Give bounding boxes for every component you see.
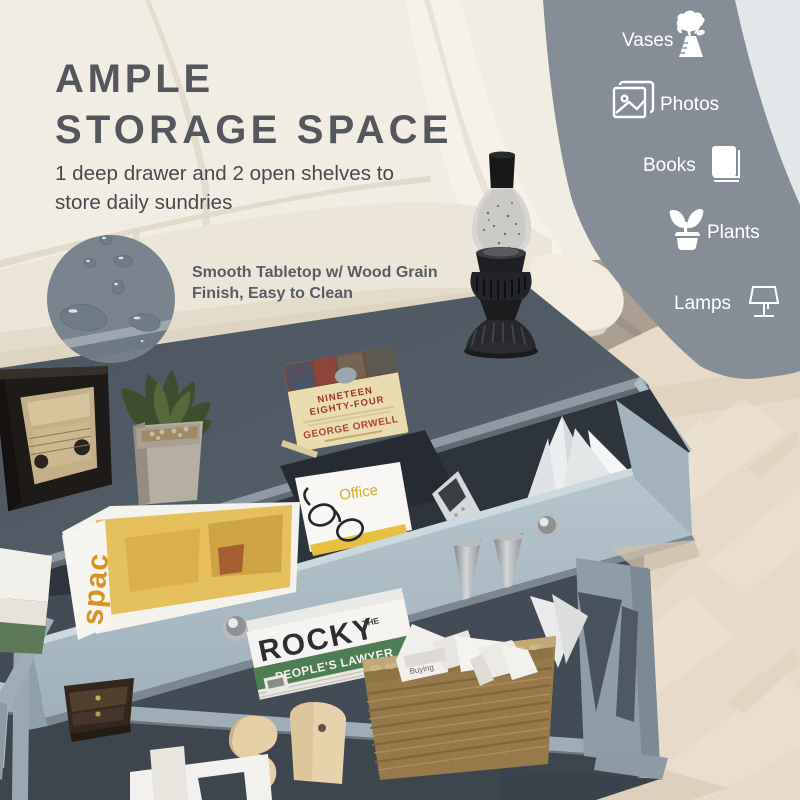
svg-text:Photos: Photos bbox=[660, 94, 719, 115]
svg-text:1 deep drawer and 2 open shelv: 1 deep drawer and 2 open shelves to bbox=[55, 162, 394, 185]
svg-text:AMPLE: AMPLE bbox=[55, 57, 214, 101]
svg-text:Vases: Vases bbox=[622, 30, 673, 51]
svg-text:Smooth Tabletop w/ Wood Grain: Smooth Tabletop w/ Wood Grain bbox=[192, 264, 438, 281]
svg-text:Books: Books bbox=[643, 155, 696, 176]
svg-text:spac: spac bbox=[76, 551, 115, 626]
svg-text:Lamps: Lamps bbox=[674, 293, 731, 314]
svg-text:Finish, Easy to Clean: Finish, Easy to Clean bbox=[192, 285, 353, 302]
svg-text:store daily sundries: store daily sundries bbox=[55, 191, 232, 214]
svg-text:Plants: Plants bbox=[707, 222, 760, 243]
svg-text:STORAGE SPACE: STORAGE SPACE bbox=[55, 108, 453, 152]
